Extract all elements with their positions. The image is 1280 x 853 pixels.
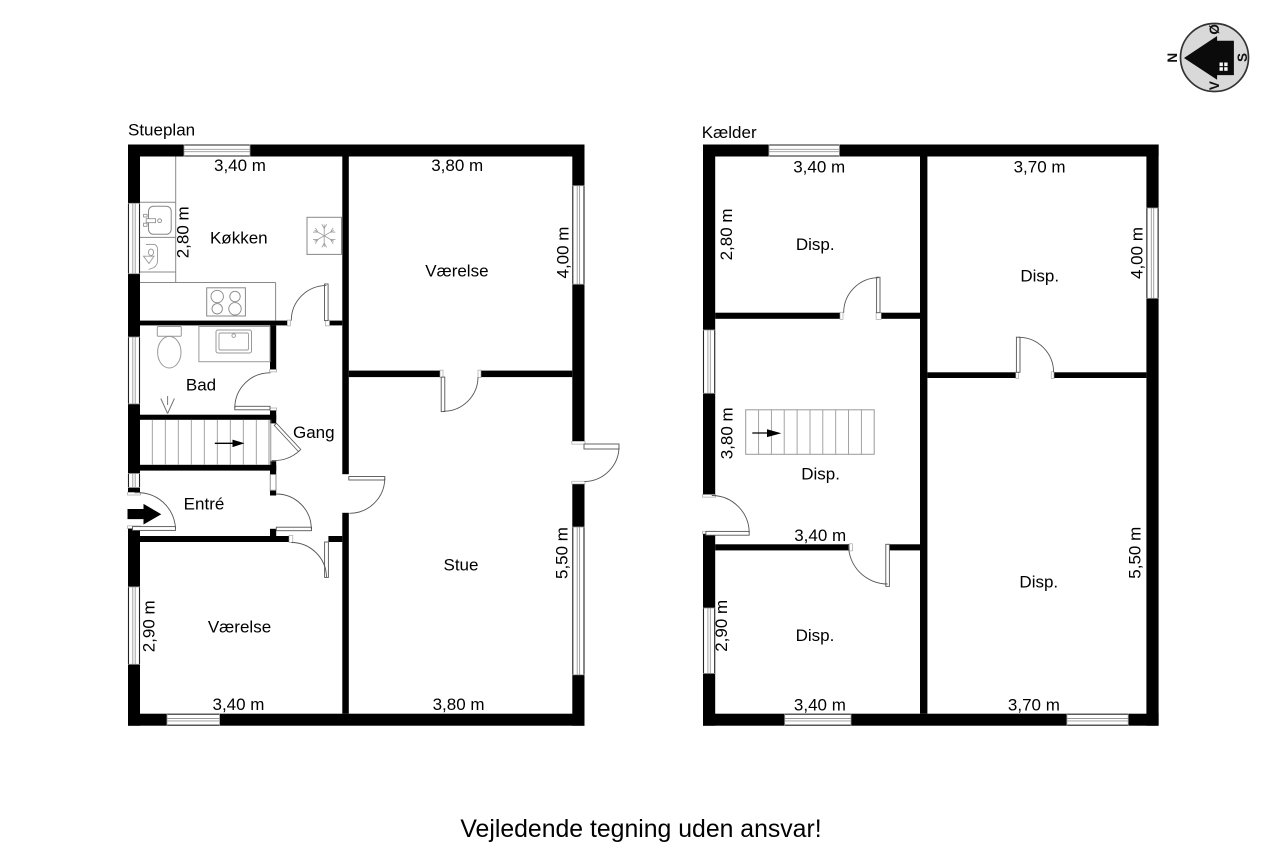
svg-text:Disp.: Disp.	[1019, 572, 1058, 591]
svg-text:Vejledende tegning uden ansvar: Vejledende tegning uden ansvar!	[460, 816, 821, 843]
svg-text:5,50 m: 5,50 m	[1126, 527, 1145, 579]
svg-text:Stueplan: Stueplan	[128, 120, 195, 139]
svg-text:2,80 m: 2,80 m	[174, 206, 193, 258]
svg-text:2,80 m: 2,80 m	[717, 208, 736, 260]
svg-text:3,40 m: 3,40 m	[214, 156, 266, 175]
svg-text:Disp.: Disp.	[796, 626, 835, 645]
svg-text:3,80 m: 3,80 m	[431, 156, 483, 175]
svg-text:S: S	[1235, 53, 1250, 62]
svg-text:4,00 m: 4,00 m	[1127, 227, 1146, 279]
svg-text:Kælder: Kælder	[702, 123, 757, 142]
svg-text:3,40 m: 3,40 m	[794, 526, 846, 545]
svg-text:Entré: Entré	[184, 495, 225, 514]
svg-text:Værelse: Værelse	[208, 617, 271, 636]
svg-text:3,40 m: 3,40 m	[793, 158, 845, 177]
svg-text:2,90 m: 2,90 m	[139, 600, 158, 652]
svg-text:Disp.: Disp.	[796, 235, 835, 254]
svg-text:3,80 m: 3,80 m	[718, 407, 737, 459]
svg-text:3,40 m: 3,40 m	[213, 695, 265, 714]
svg-text:Stue: Stue	[444, 556, 479, 575]
svg-text:Ø: Ø	[1207, 24, 1222, 35]
svg-text:Disp.: Disp.	[1020, 267, 1059, 286]
svg-text:2,90 m: 2,90 m	[712, 600, 731, 652]
svg-text:Køkken: Køkken	[210, 229, 268, 248]
svg-text:3,70 m: 3,70 m	[1008, 696, 1060, 715]
svg-text:Værelse: Værelse	[425, 262, 488, 281]
svg-text:Gang: Gang	[293, 423, 335, 442]
svg-text:Disp.: Disp.	[801, 465, 840, 484]
svg-text:5,50 m: 5,50 m	[553, 527, 572, 579]
svg-text:3,40 m: 3,40 m	[794, 696, 846, 715]
svg-text:Bad: Bad	[186, 376, 216, 395]
svg-text:N: N	[1165, 53, 1180, 63]
svg-text:3,70 m: 3,70 m	[1014, 158, 1066, 177]
svg-text:V: V	[1207, 81, 1222, 90]
svg-text:3,80 m: 3,80 m	[433, 695, 485, 714]
svg-text:4,00 m: 4,00 m	[553, 227, 572, 279]
